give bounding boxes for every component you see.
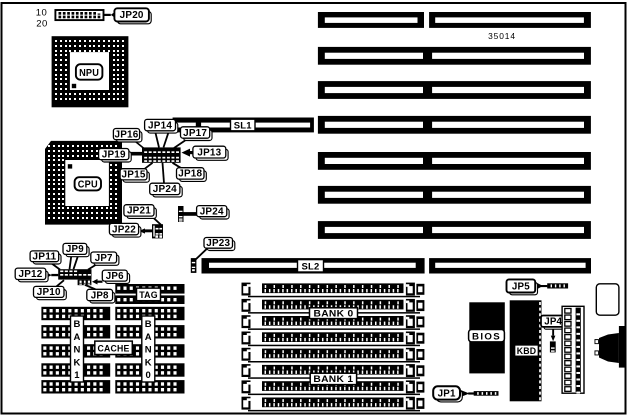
svg-text:JP20: JP20 [120,10,144,21]
svg-text:K: K [73,357,80,368]
svg-text:JP19: JP19 [102,149,126,160]
svg-text:N: N [73,345,80,356]
svg-text:JP21: JP21 [127,206,151,217]
svg-text:JP9: JP9 [66,244,84,255]
svg-text:JP17: JP17 [183,128,207,139]
svg-text:JP22: JP22 [112,224,136,235]
svg-text:B: B [73,319,80,330]
svg-text:CPU: CPU [78,180,98,191]
svg-text:JP18: JP18 [178,169,202,180]
svg-text:JP8: JP8 [91,290,109,301]
svg-text:B: B [145,319,152,330]
svg-text:BANK 0: BANK 0 [314,308,354,319]
svg-text:BANK 1: BANK 1 [313,374,353,385]
svg-text:JP15: JP15 [122,170,146,181]
svg-text:JP1: JP1 [438,388,456,399]
svg-text:SL1: SL1 [234,120,253,131]
svg-text:JP24: JP24 [153,184,177,195]
svg-text:10: 10 [36,8,48,19]
svg-text:NPU: NPU [79,68,99,79]
svg-text:JP10: JP10 [37,287,61,298]
svg-text:CACHE: CACHE [98,343,130,354]
svg-text:JP14: JP14 [148,120,172,131]
svg-text:1: 1 [74,370,80,381]
svg-text:KBD: KBD [517,346,537,357]
svg-text:N: N [145,345,152,356]
svg-text:JP12: JP12 [19,269,43,280]
svg-text:35014: 35014 [488,31,516,41]
svg-text:BIOS: BIOS [472,331,501,342]
svg-text:A: A [73,332,80,343]
svg-text:A: A [145,332,152,343]
svg-text:JP5: JP5 [512,281,530,292]
svg-text:JP7: JP7 [95,253,113,264]
svg-text:JP23: JP23 [206,238,230,249]
svg-text:JP24: JP24 [200,206,224,217]
svg-text:20: 20 [36,18,48,29]
svg-text:SL2: SL2 [302,261,320,272]
svg-text:JP4: JP4 [544,317,562,328]
svg-text:0: 0 [146,370,151,381]
svg-text:JP6: JP6 [106,271,124,282]
svg-text:JP13: JP13 [197,147,221,158]
svg-text:JP16: JP16 [115,129,139,140]
svg-text:K: K [145,357,152,368]
svg-text:JP11: JP11 [32,252,56,263]
svg-text:TAG: TAG [139,290,158,301]
